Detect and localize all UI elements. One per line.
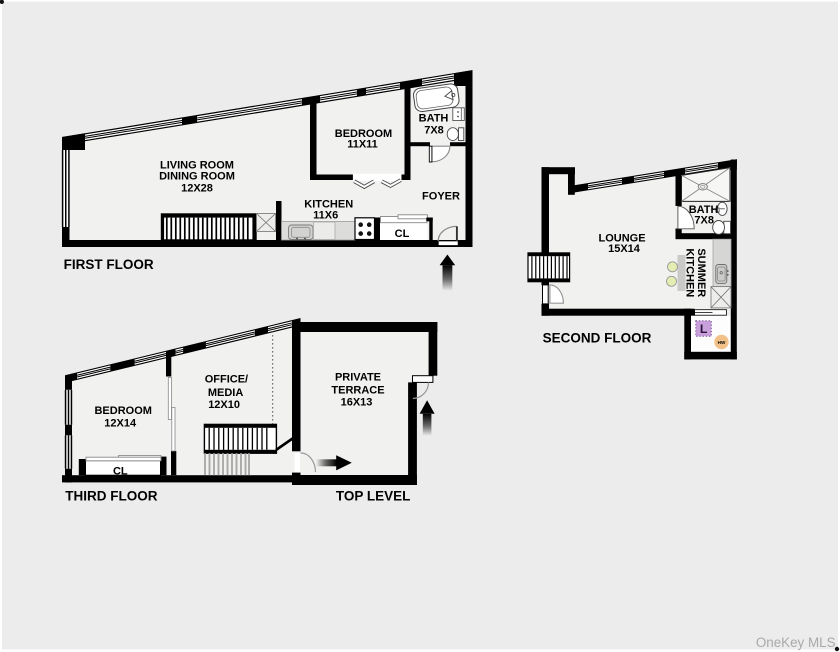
svg-text:BATH: BATH xyxy=(419,112,449,124)
svg-text:12X10: 12X10 xyxy=(208,399,240,411)
svg-text:11X11: 11X11 xyxy=(347,139,378,151)
svg-text:LIVING ROOM: LIVING ROOM xyxy=(160,159,234,171)
svg-text:CL: CL xyxy=(395,228,410,240)
svg-text:L: L xyxy=(700,322,708,336)
svg-text:OFFICE/: OFFICE/ xyxy=(205,373,248,385)
svg-text:BEDROOM: BEDROOM xyxy=(94,405,151,417)
svg-text:PRIVATE: PRIVATE xyxy=(335,371,381,383)
svg-text:KITCHEN: KITCHEN xyxy=(683,248,695,297)
svg-text:THIRD FLOOR: THIRD FLOOR xyxy=(65,488,157,503)
svg-text:TOP LEVEL: TOP LEVEL xyxy=(336,488,411,503)
svg-text:MEDIA: MEDIA xyxy=(208,387,244,399)
svg-text:HW: HW xyxy=(718,340,726,345)
svg-text:SECOND FLOOR: SECOND FLOOR xyxy=(543,330,652,345)
svg-text:DINING ROOM: DINING ROOM xyxy=(159,171,235,183)
svg-text:11X6: 11X6 xyxy=(313,210,338,222)
svg-text:SUMMER: SUMMER xyxy=(695,248,707,297)
svg-text:7X8: 7X8 xyxy=(694,215,714,227)
svg-text:12X28: 12X28 xyxy=(181,182,213,194)
svg-text:FOYER: FOYER xyxy=(422,191,460,203)
svg-text:FIRST FLOOR: FIRST FLOOR xyxy=(64,257,154,272)
svg-text:12X14: 12X14 xyxy=(104,417,137,429)
svg-text:15X14: 15X14 xyxy=(608,243,641,255)
svg-text:16X13: 16X13 xyxy=(341,397,373,409)
svg-text:TERRACE: TERRACE xyxy=(331,385,384,397)
svg-text:7X8: 7X8 xyxy=(424,125,444,137)
svg-text:CL: CL xyxy=(113,466,128,478)
svg-text:OneKey MLS: OneKey MLS xyxy=(756,635,836,650)
